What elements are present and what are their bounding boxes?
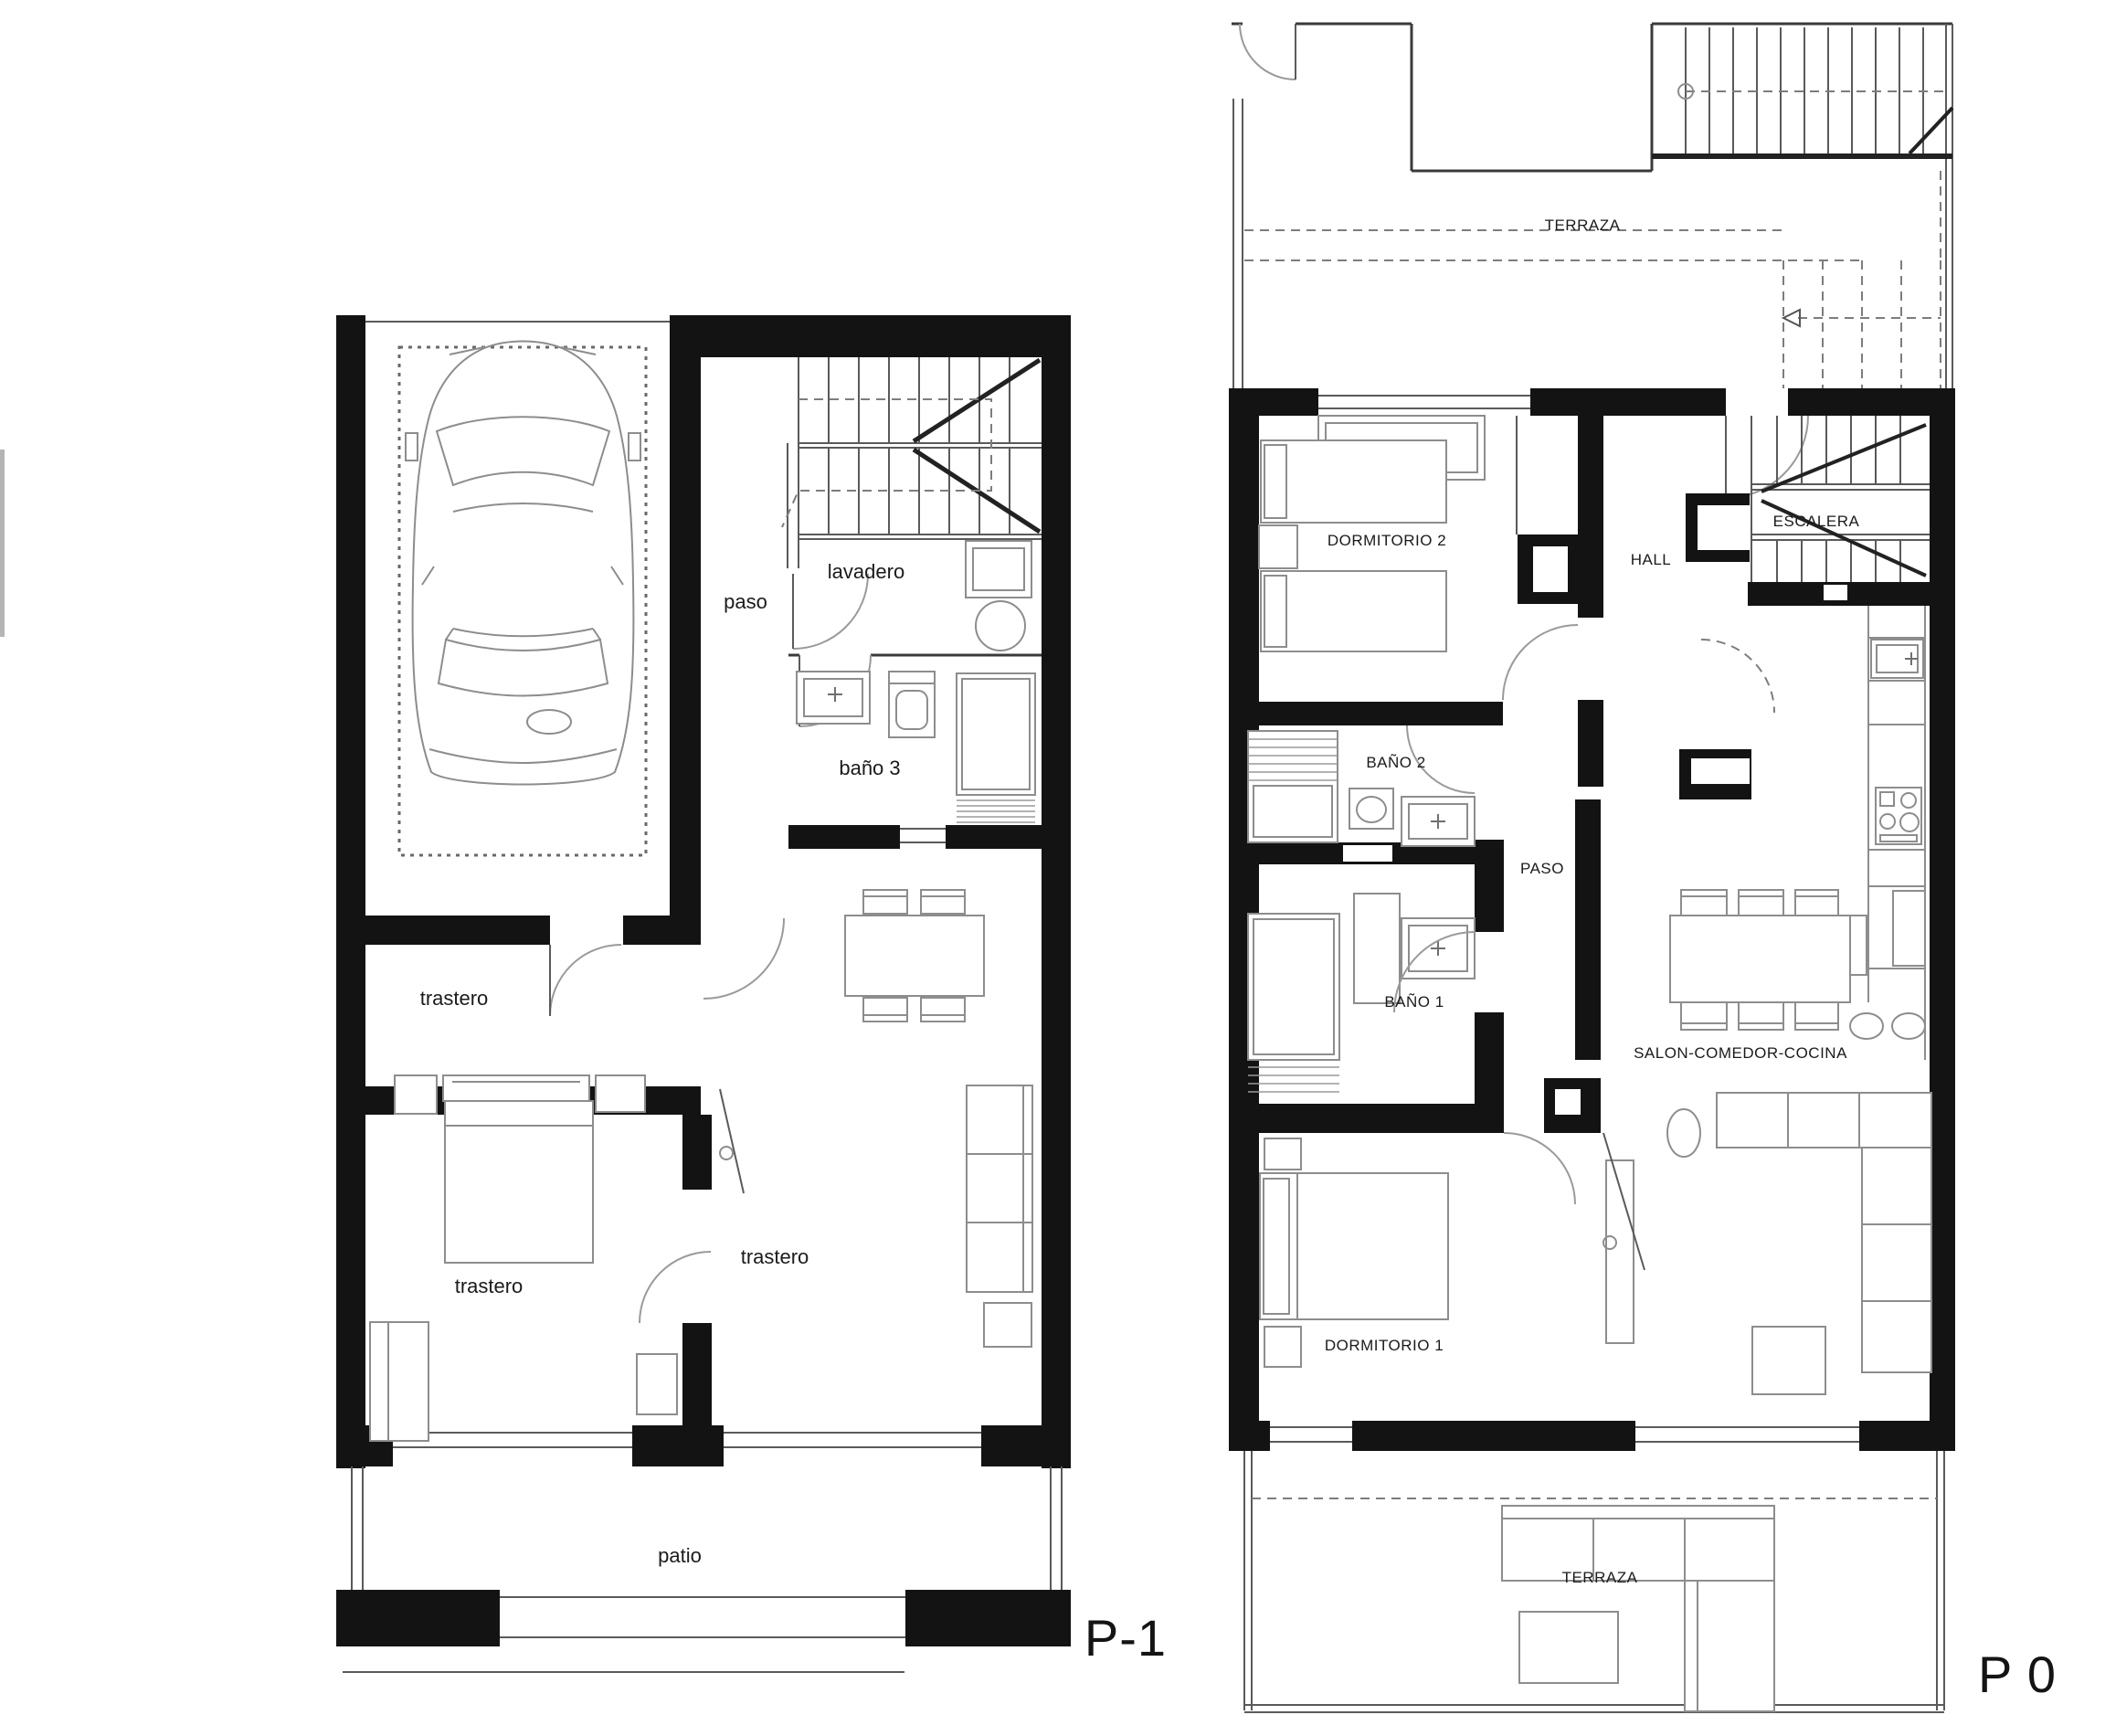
toilet-icon	[889, 672, 935, 737]
door-leaf	[720, 1089, 744, 1193]
wardrobe-icon	[370, 1322, 428, 1441]
sink-icon	[1871, 640, 1923, 678]
parking-bay-dashed	[399, 347, 646, 855]
room-label-salon: SALON-COMEDOR-COCINA	[1634, 1044, 1847, 1062]
room-label-bano1: BAÑO 1	[1384, 993, 1444, 1011]
sink-icon	[1402, 918, 1475, 979]
plan-title-p1: P-1	[1084, 1609, 1167, 1667]
room-label-terraza-top: TERRAZA	[1545, 217, 1621, 234]
sheet-edge-mark	[0, 450, 5, 637]
vanity-icon	[1354, 894, 1400, 1003]
room-label-dormitorio2: DORMITORIO 2	[1328, 532, 1446, 549]
stove-icon	[1876, 788, 1921, 844]
room-label-bano3: baño 3	[839, 757, 900, 779]
bathroom-2	[1248, 725, 1475, 846]
car-icon	[406, 342, 640, 785]
door-arc	[793, 574, 868, 649]
bedroom-1	[1260, 1133, 1575, 1367]
bathroom-3	[788, 655, 1042, 822]
room-label-paso: paso	[724, 590, 767, 613]
nightstand-icon	[1259, 525, 1297, 568]
door-arc	[1240, 24, 1296, 79]
room-label-hall: HALL	[1631, 551, 1672, 568]
floor-plan-drawing: paso lavadero baño 3 trastero trastero t…	[0, 0, 2105, 1736]
door-leaf	[1603, 1133, 1645, 1270]
garage	[365, 322, 670, 855]
nightstand-icon	[1264, 1327, 1301, 1367]
dining-table-icon	[845, 890, 984, 1021]
terrace-bottom: TERRAZA	[1244, 1451, 1944, 1712]
sofa-icon	[967, 1085, 1032, 1347]
stair-treads	[829, 357, 1010, 535]
washer-icon	[966, 541, 1031, 598]
door-arc	[1504, 1133, 1575, 1204]
room-label-bano2: BAÑO 2	[1366, 754, 1425, 771]
basement-main-room	[550, 890, 1032, 1347]
sink-icon	[1402, 797, 1475, 846]
round-sink-icon	[976, 601, 1025, 651]
room-label-escalera: ESCALERA	[1773, 513, 1860, 530]
fridge-icon	[1893, 891, 1925, 966]
nightstand-icon	[596, 1075, 645, 1112]
toilet-icon	[1349, 789, 1393, 829]
room-label-patio: patio	[658, 1544, 702, 1567]
plan-p1: paso lavadero baño 3 trastero trastero t…	[336, 315, 1167, 1672]
plant-icon	[1667, 1109, 1700, 1157]
kitchen-counter-icon	[1868, 606, 1925, 1060]
plan-title-p0: P 0	[1978, 1646, 2057, 1703]
coffee-table-icon	[1752, 1327, 1825, 1394]
sink-icon	[797, 672, 870, 724]
door-arc	[1726, 416, 1808, 498]
plan-p0: TERRAZA	[1229, 24, 2057, 1712]
desk-icon	[637, 1354, 677, 1414]
nightstand-icon	[395, 1075, 437, 1114]
outdoor-table-icon	[1519, 1612, 1618, 1683]
room-label-trastero-c: trastero	[741, 1245, 809, 1268]
room-label-lavadero: lavadero	[828, 560, 904, 583]
floor-plan-sheet: paso lavadero baño 3 trastero trastero t…	[0, 0, 2105, 1736]
side-table-icon	[984, 1303, 1031, 1347]
nightstand-icon	[1264, 1138, 1301, 1170]
door-arc	[703, 918, 784, 999]
stairs-icon	[1652, 27, 1952, 156]
double-bed-icon	[395, 1075, 645, 1263]
dining-table-icon	[1670, 890, 1867, 1030]
basement-bedroom	[370, 1075, 677, 1441]
room-label-dormitorio1: DORMITORIO 1	[1325, 1337, 1444, 1354]
shower-icon	[1248, 731, 1338, 842]
shower-icon	[1248, 914, 1339, 1092]
room-label-trastero-b: trastero	[455, 1275, 524, 1297]
stools-icon	[1850, 1013, 1925, 1039]
stair-direction-arrow	[1783, 310, 1800, 326]
door-arc	[640, 1252, 711, 1323]
door-arc	[1701, 640, 1774, 713]
door-arc	[550, 945, 621, 1016]
roof-projection-dashed	[1244, 171, 1941, 388]
living-dining-area	[1603, 890, 1931, 1394]
terrace-top: TERRAZA	[1232, 24, 1952, 388]
laundry-room	[793, 541, 1031, 651]
wall-niche	[1518, 535, 1751, 1133]
door-arc	[1503, 625, 1578, 700]
shower-icon	[957, 673, 1035, 822]
double-bed-icon	[1260, 1138, 1448, 1367]
room-label-terraza-bottom: TERRAZA	[1562, 1569, 1638, 1586]
stair-closet	[1686, 493, 1750, 562]
room-label-paso: PASO	[1520, 860, 1564, 877]
room-label-trastero-a: trastero	[420, 987, 489, 1010]
stairs-icon	[782, 357, 1042, 568]
